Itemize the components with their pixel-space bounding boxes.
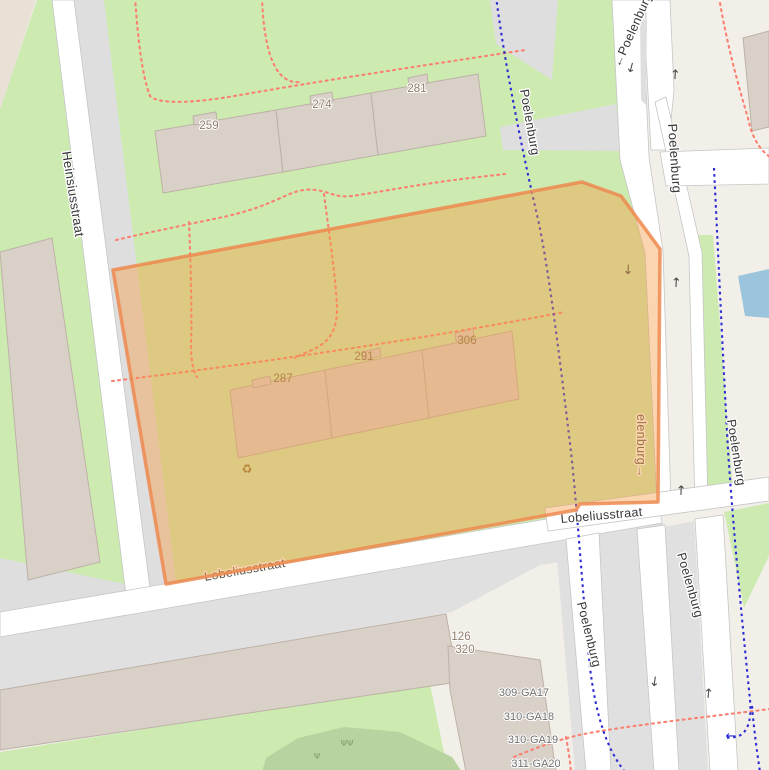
parcel-label: 310-GA18 [504, 711, 554, 723]
scrub-icon: Ψ [314, 752, 320, 761]
house-number: 281 [407, 83, 426, 95]
map-viewport[interactable]: ♻ ΨΨ Ψ ↓ ↑ ↓ ↑ ↑ ↓ ↑ ← Heinsiusstraat ←P… [0, 0, 769, 770]
parcel-label: 309-GA17 [499, 687, 549, 699]
parcel-label: 310-GA19 [508, 734, 558, 746]
oneway-arrow-up-icon: ↑ [702, 687, 714, 703]
building-parcel-strip [448, 646, 556, 770]
cycleway-arrow-left-icon: ← [726, 729, 737, 744]
parcel-label: 311-GA20 [511, 758, 560, 770]
house-number: 126 [451, 631, 470, 643]
scrub-icon: ΨΨ [341, 739, 354, 748]
road-median-island [640, 20, 647, 105]
house-number: 274 [312, 99, 332, 111]
house-number: 259 [199, 120, 218, 132]
oneway-arrow-up-icon: ↑ [669, 68, 681, 84]
oneway-arrow-up-icon: ↑ [675, 484, 686, 499]
oneway-arrow-down-icon: ↓ [648, 674, 661, 690]
oneway-arrow-up-icon: ↑ [670, 276, 682, 292]
map-canvas[interactable]: ♻ ΨΨ Ψ ↓ ↑ ↓ ↑ ↑ ↓ ↑ ← Heinsiusstraat ←P… [0, 0, 769, 770]
house-number: 320 [455, 644, 474, 656]
